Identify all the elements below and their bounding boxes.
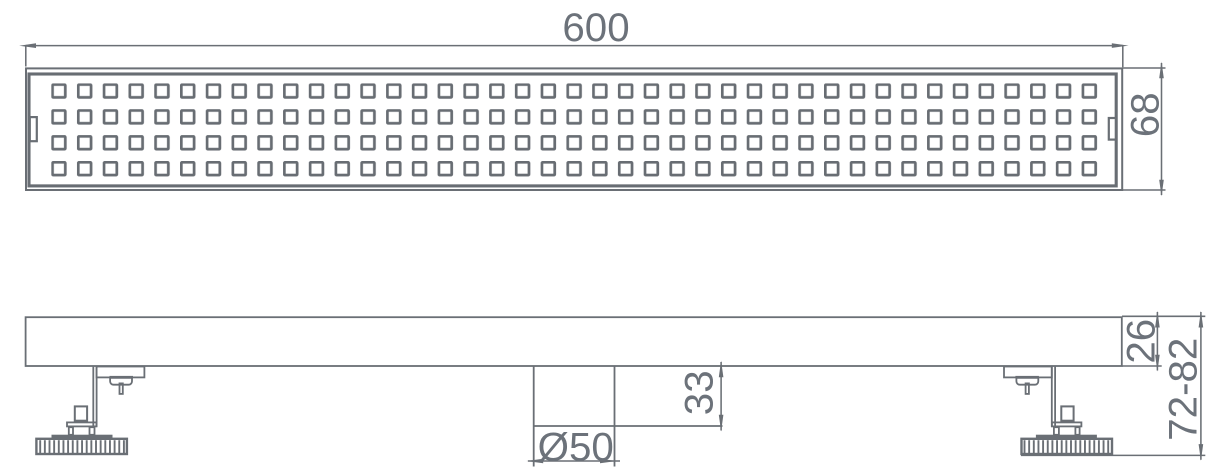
- svg-text:33: 33: [677, 370, 722, 415]
- svg-text:72-82: 72-82: [1161, 338, 1206, 441]
- svg-text:600: 600: [562, 5, 629, 50]
- svg-text:Ø50: Ø50: [538, 425, 614, 470]
- svg-text:26: 26: [1119, 319, 1164, 364]
- svg-text:68: 68: [1123, 92, 1168, 137]
